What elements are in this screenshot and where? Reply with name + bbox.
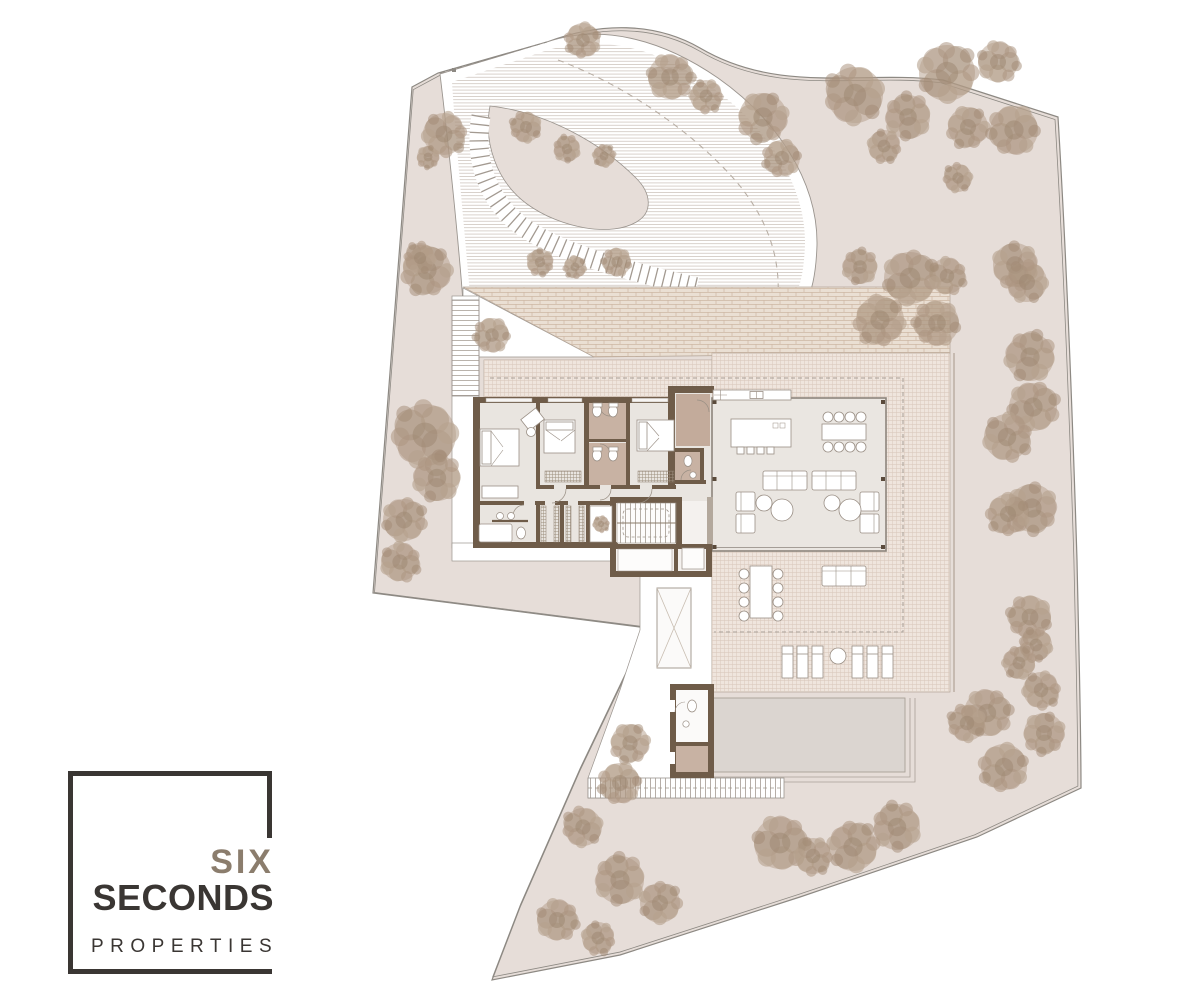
cooktop — [773, 423, 778, 428]
site-plan-page: SIX SECONDS PROPERTIES — [0, 0, 1199, 1005]
pool — [713, 698, 905, 772]
pool-area — [713, 698, 915, 782]
stairwell — [617, 503, 676, 543]
logo-word-six: SIX — [210, 845, 274, 879]
company-logo: SIX SECONDS PROPERTIES — [68, 771, 272, 974]
west-exterior-stairs — [452, 300, 479, 396]
bed-1 — [480, 429, 519, 466]
tree-icon — [968, 32, 1029, 93]
desk-chair — [527, 428, 536, 437]
dining-table — [822, 424, 866, 440]
toilet — [688, 700, 697, 712]
dining-area — [822, 412, 866, 452]
side-table — [830, 648, 846, 664]
section-wall-hatched — [707, 497, 713, 544]
entry-floor — [676, 394, 710, 446]
logo-word-seconds: SECONDS — [92, 880, 274, 916]
outdoor-sofa — [822, 566, 866, 586]
storage-room — [618, 549, 672, 571]
sink — [683, 721, 689, 727]
logo-frame-bottom — [68, 969, 272, 974]
logo-frame-top — [68, 771, 272, 776]
windows — [486, 398, 668, 402]
sofa — [812, 471, 856, 490]
bed-3 — [637, 420, 674, 451]
bench — [482, 486, 518, 498]
bed-2 — [544, 420, 575, 453]
elevator — [682, 548, 704, 569]
sofa — [763, 471, 807, 490]
logo-frame-left — [68, 771, 73, 974]
logo-word-properties: PROPERTIES — [91, 937, 278, 956]
pool-house — [668, 684, 714, 778]
car-lift-shaft — [657, 588, 691, 668]
gate-post — [452, 68, 456, 72]
logo-frame-right — [267, 771, 272, 838]
